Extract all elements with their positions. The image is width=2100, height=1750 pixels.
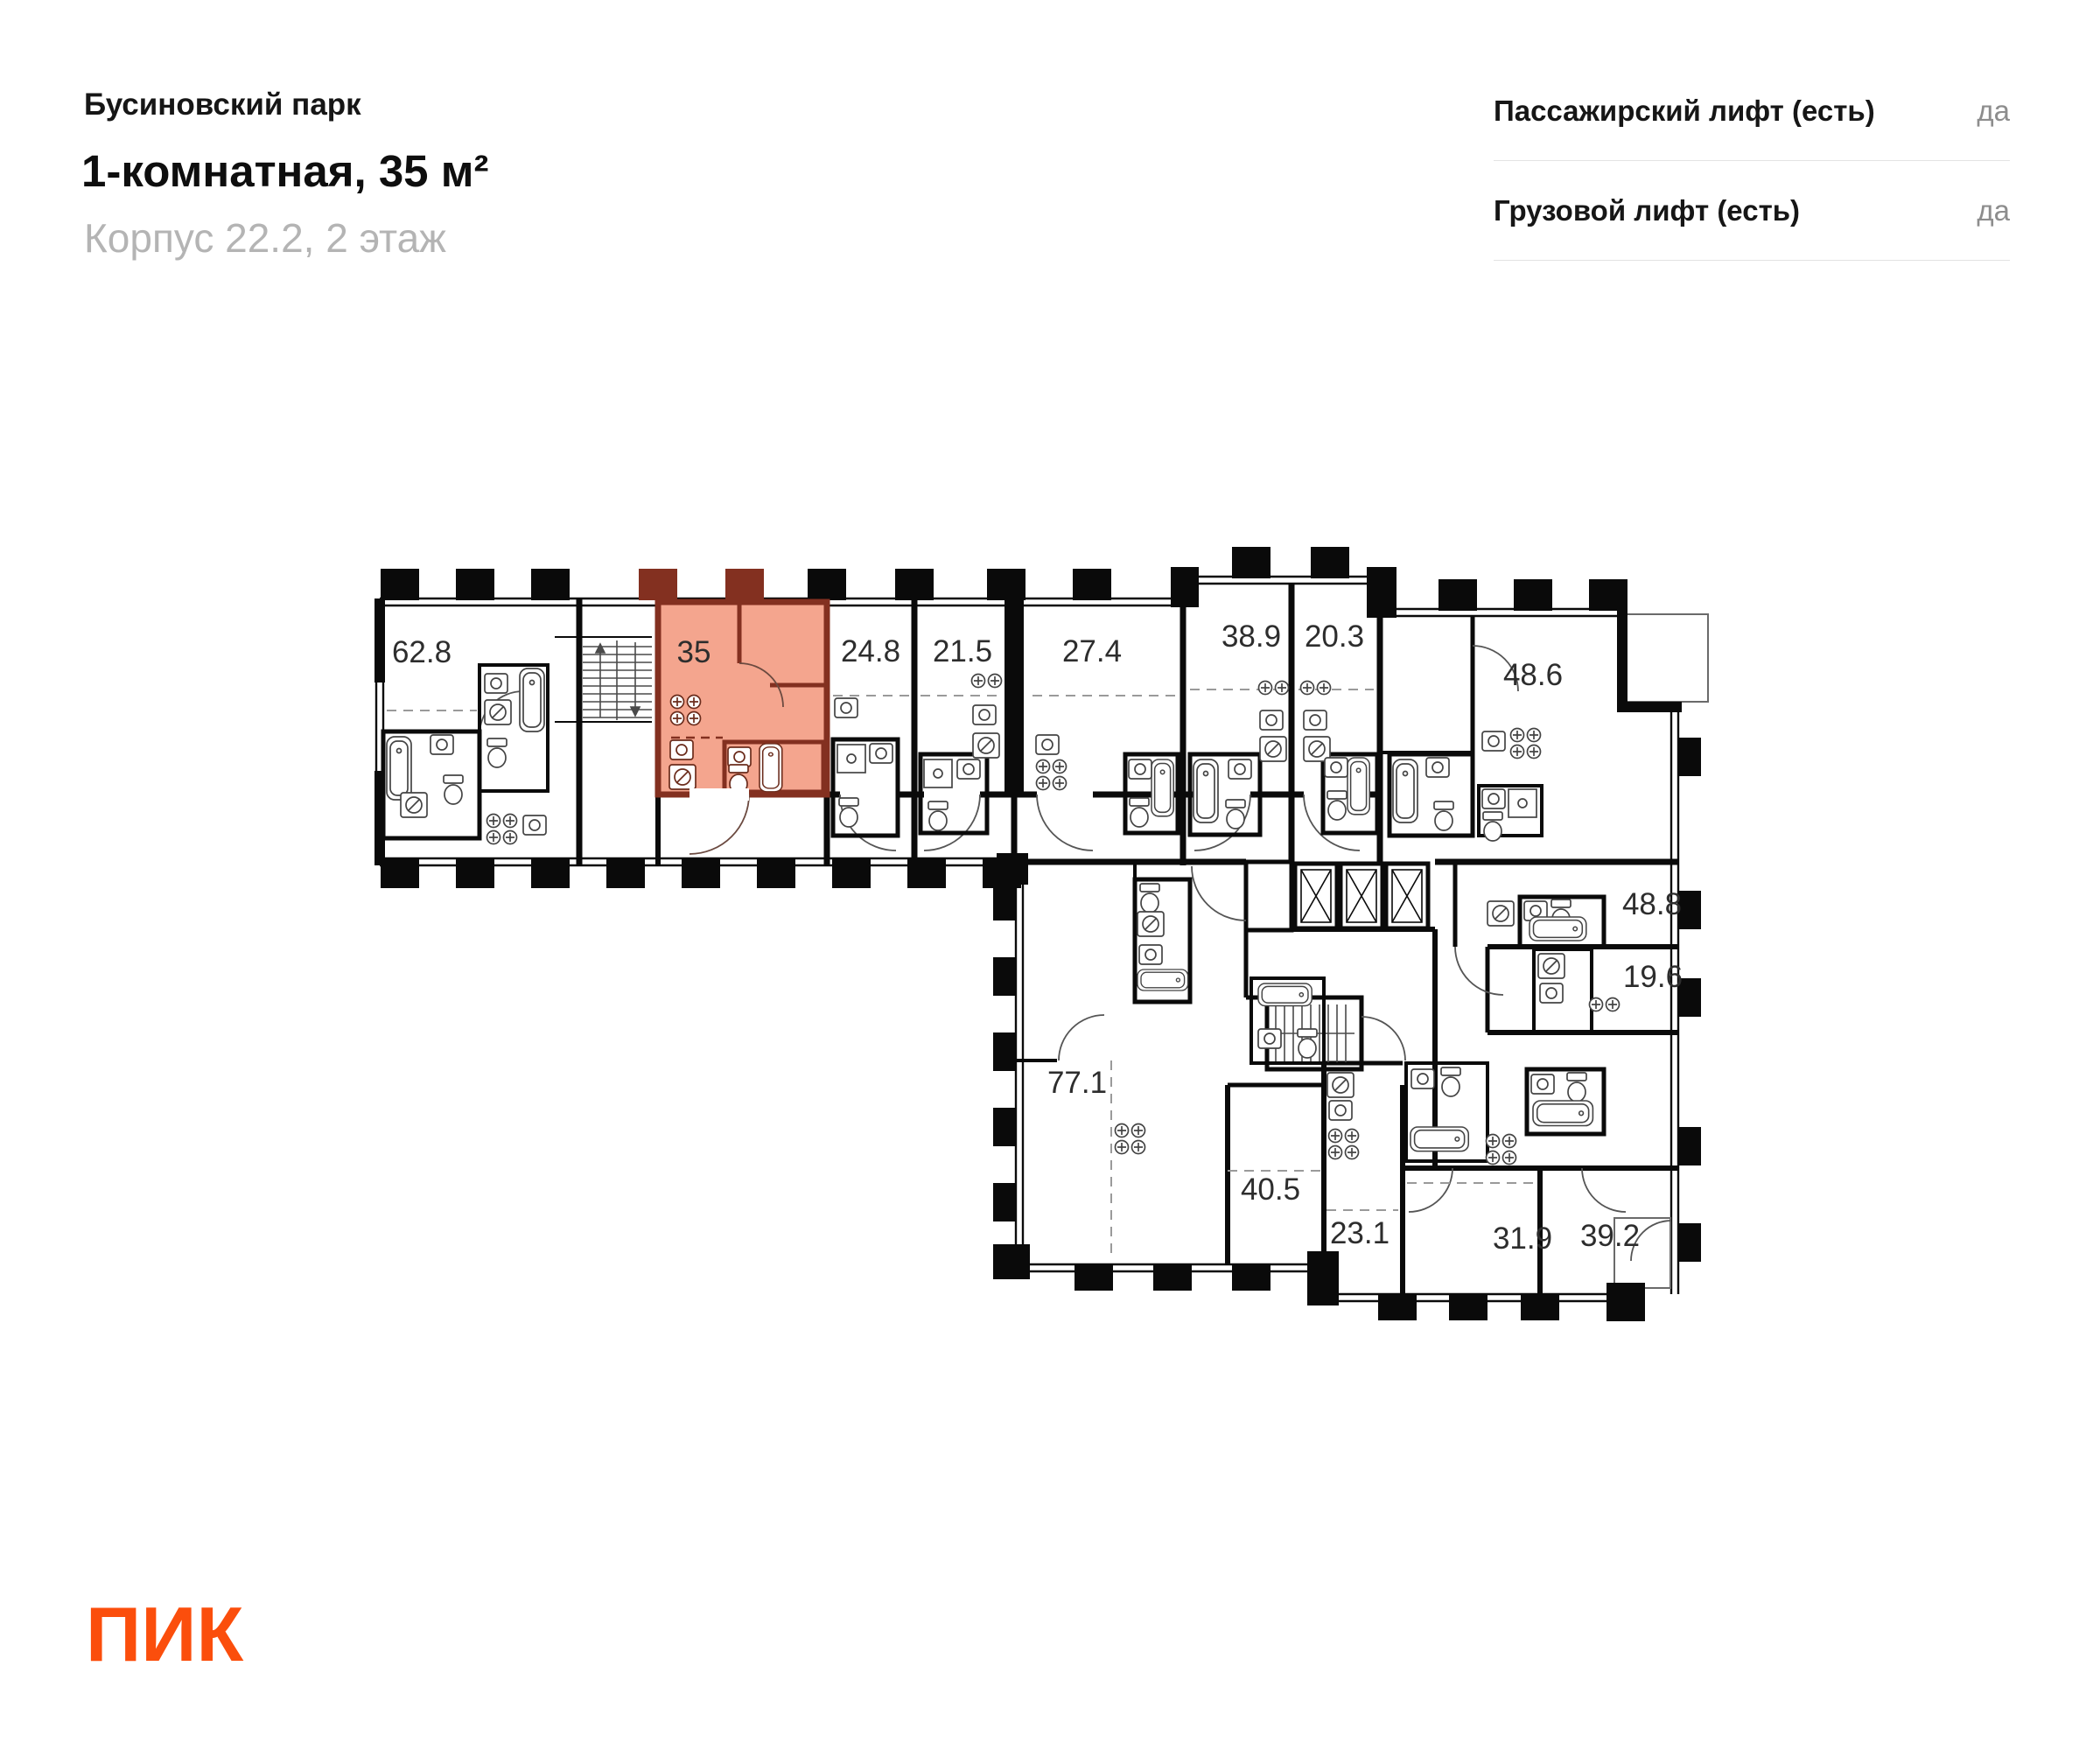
area-label-48.6: 48.6 <box>1503 658 1563 692</box>
elevator-shafts <box>1246 862 1428 930</box>
floor-plan-page: Бусиновский парк 1-комнатная, 35 м² Корп… <box>0 0 2100 1750</box>
pilaster-blocks <box>374 547 1701 1321</box>
area-label-24.8: 24.8 <box>841 634 900 668</box>
area-label-48.8: 48.8 <box>1622 887 1682 921</box>
area-label-77.1: 77.1 <box>1047 1066 1107 1100</box>
stairs-upper <box>583 640 652 720</box>
area-label-31.9: 31.9 <box>1493 1221 1552 1256</box>
floor-plan: 62.83524.821.527.438.920.348.648.819.677… <box>0 0 2100 1750</box>
area-label-27.4: 27.4 <box>1062 634 1122 668</box>
highlighted-pilaster <box>725 569 764 600</box>
area-label-20.3: 20.3 <box>1305 619 1364 654</box>
area-label-19.6: 19.6 <box>1623 960 1683 994</box>
pik-logo[interactable]: ПИК <box>86 1596 243 1673</box>
area-label-62.8: 62.8 <box>392 635 451 669</box>
area-label-23.1: 23.1 <box>1330 1216 1389 1250</box>
area-label-40.5: 40.5 <box>1241 1172 1300 1207</box>
highlighted-pilaster <box>639 569 677 600</box>
area-label-38.9: 38.9 <box>1221 619 1281 654</box>
balcony-outline <box>1614 614 1708 1288</box>
area-label-21.5: 21.5 <box>933 634 992 668</box>
area-label-39.2: 39.2 <box>1580 1219 1640 1253</box>
exterior-walls <box>376 577 1678 1301</box>
highlighted-unit-group <box>639 569 827 854</box>
area-label-35[interactable]: 35 <box>677 635 711 669</box>
